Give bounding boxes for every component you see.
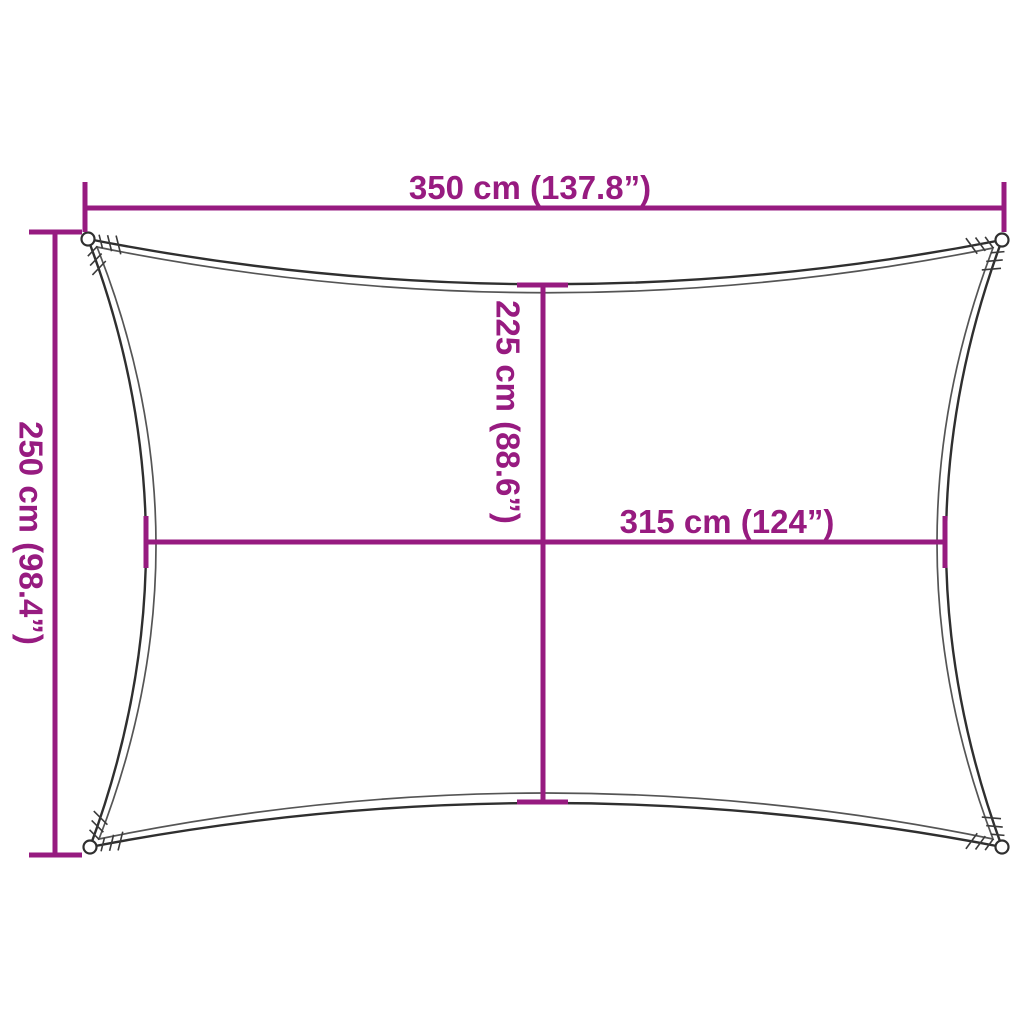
outer-height-label: 250 cm (98.4”)	[15, 421, 48, 645]
inner-height-label: 225 cm (88.6”)	[492, 300, 525, 524]
inner-width-label: 315 cm (124”)	[620, 505, 835, 538]
shade-sail-dimension-diagram: 350 cm (137.8”) 250 cm (98.4”) 225 cm (8…	[0, 0, 1024, 1024]
outer-width-label: 350 cm (137.8”)	[409, 171, 651, 204]
